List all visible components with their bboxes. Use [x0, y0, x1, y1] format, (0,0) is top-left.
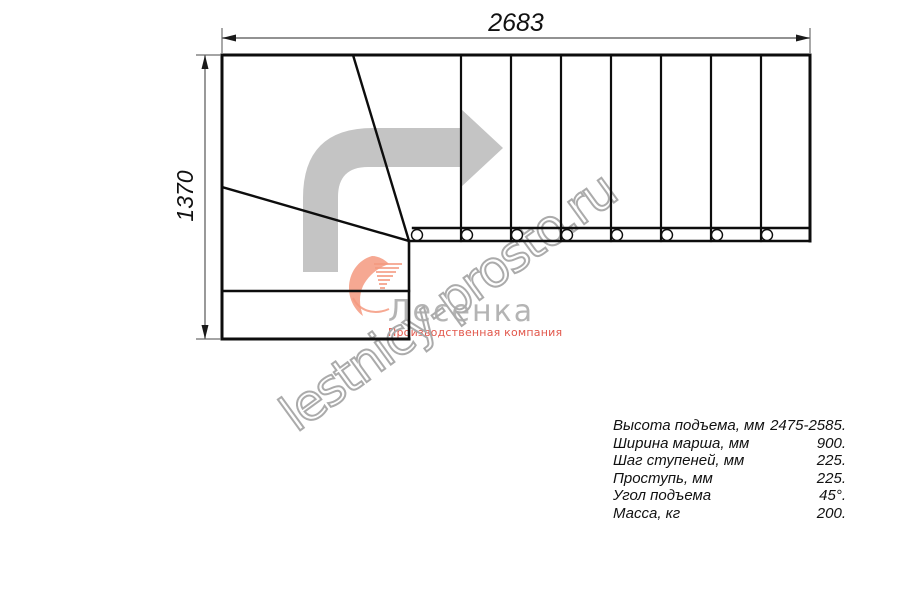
spec-value: 2475-2585.	[770, 417, 846, 435]
spec-row: Угол подъема 45°.	[613, 487, 846, 505]
spec-row: Масса, кг 200.	[613, 505, 846, 523]
spec-label: Масса, кг	[613, 505, 680, 523]
spec-label: Угол подъема	[613, 487, 711, 505]
dim-width-label: 2683	[487, 9, 544, 37]
spec-value: 225.	[817, 470, 846, 488]
spec-row: Проступь, мм 225.	[613, 470, 846, 488]
spec-table: Высота подъема, мм 2475-2585. Ширина мар…	[613, 417, 846, 523]
dim-height-label: 1370	[172, 170, 198, 221]
dimension-width: 2683	[222, 9, 810, 53]
dimension-height: 1370	[172, 55, 221, 339]
direction-arrow	[303, 108, 503, 272]
spec-row: Шаг ступеней, мм 225.	[613, 452, 846, 470]
spec-value: 45°.	[819, 487, 846, 505]
spec-value: 225.	[817, 452, 846, 470]
spec-value: 200.	[817, 505, 846, 523]
spec-label: Шаг ступеней, мм	[613, 452, 744, 470]
spec-label: Проступь, мм	[613, 470, 713, 488]
spec-label: Ширина марша, мм	[613, 435, 749, 453]
spec-row: Ширина марша, мм 900.	[613, 435, 846, 453]
spec-value: 900.	[817, 435, 846, 453]
baluster-circles	[412, 230, 773, 241]
stair-drawing-page: lestnicy-prosto.ru Лесенка Производствен…	[0, 0, 900, 600]
spec-label: Высота подъема, мм	[613, 417, 765, 435]
spec-row: Высота подъема, мм 2475-2585.	[613, 417, 846, 435]
